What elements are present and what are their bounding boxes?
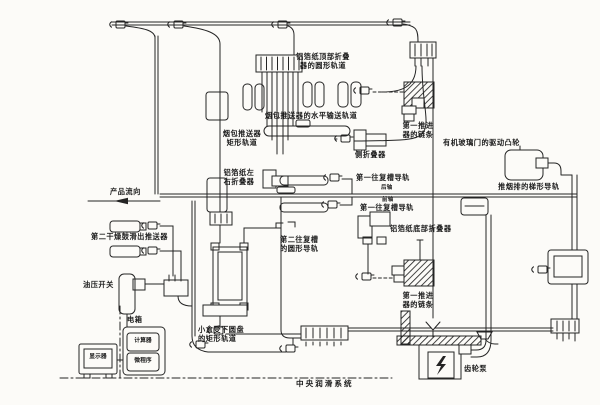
label-computer: 计算器 [127,338,159,345]
label-gear-pump: 齿轮泵 [464,364,487,373]
label-foil-lr-folder: 铝箔纸左 右折叠器 [220,168,258,186]
right-vertical-pipes [461,175,588,340]
label-microprogram: 微程序 [127,358,159,365]
label-push-row-trapezoid-rail: 推烟排的梯形导轨 [498,182,560,191]
first-pusher-chain-lower-block [356,260,434,286]
second-recip-rail-bracket [276,197,301,338]
top-supply-pipe [110,19,418,55]
label-first-recip-rail-rear: 第一往复槽导轨 [356,173,410,182]
oil-cylinders [243,82,361,110]
flow-arrowhead [114,198,128,204]
label-monitor: 显示器 [83,354,113,361]
main-horizontal-pipe [160,194,577,197]
label-foil-bottom-folder: 铝箔纸底部折叠器 [390,224,452,233]
first-pusher-chain-upper-block [354,82,434,121]
label-pack-pusher-horizontal: 烟包推送器的水平输送轨道 [265,111,357,120]
control-electronics [79,327,165,378]
side-folder-clamp [335,130,386,150]
label-first-recip-rail-front: 第一往复槽导轨 [360,203,414,212]
label-side-folder: 侧折叠器 [355,150,386,159]
label-small-box-disc-rail: 小盒受下圆盘 的矩形轨道 [198,325,254,343]
left-drop-pipe [88,36,160,204]
second-dryer-pushers [110,221,181,276]
power-bolt-icon [436,356,446,375]
bottom-manifold [301,326,348,346]
label-product-flow: 产品流向 [110,187,141,196]
label-acrylic-door-cam: 有机玻璃门的驱动凸轮 [443,138,520,147]
label-first-pusher-chain-upper: 第一推进 器的链条 [402,121,434,139]
label-second-recip-rail: 第二往复槽 的圆形导轨 [280,235,330,253]
label-foil-top-folder-rail: 铝箔纸顶部折叠 器的圆形轨道 [294,52,352,70]
label-first-pusher-chain-lower: 第一推进 器的链条 [402,291,434,309]
oil-distributor [164,280,188,296]
label-oil-pressure-switch: 油压开关 [83,280,114,289]
label-rear-axle: 后轴 [381,185,392,192]
label-electric-box: 电箱 [127,315,142,324]
label-second-dryer-pusher: 第二干燥鼓滑出推送器 [91,232,168,241]
label-pack-pusher-rect-rail: 烟包推送器 矩形轨道 [220,129,264,147]
diagram-title: 中央润滑系统 [296,379,354,389]
diagram-canvas: 铝箔纸顶部折叠 器的圆形轨道 烟包推送器的水平输送轨道 烟包推送器 矩形轨道 铝… [0,0,600,405]
door-cam-box [505,146,572,180]
